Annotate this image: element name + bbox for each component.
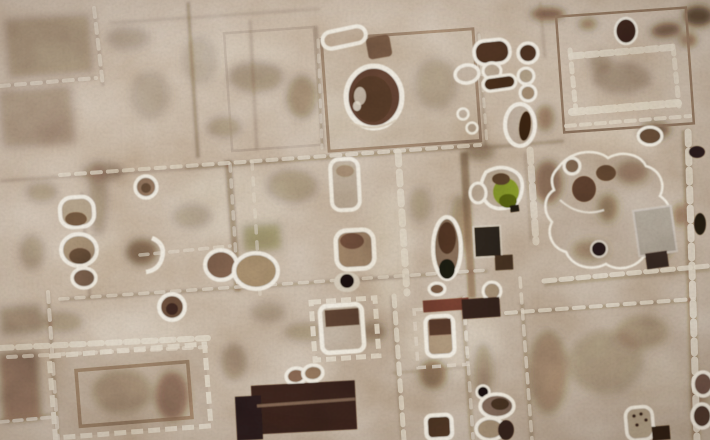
aerial-photo-canvas (0, 0, 710, 440)
excavation-aerial-photo (0, 0, 710, 440)
vignette-overlay (0, 0, 710, 440)
